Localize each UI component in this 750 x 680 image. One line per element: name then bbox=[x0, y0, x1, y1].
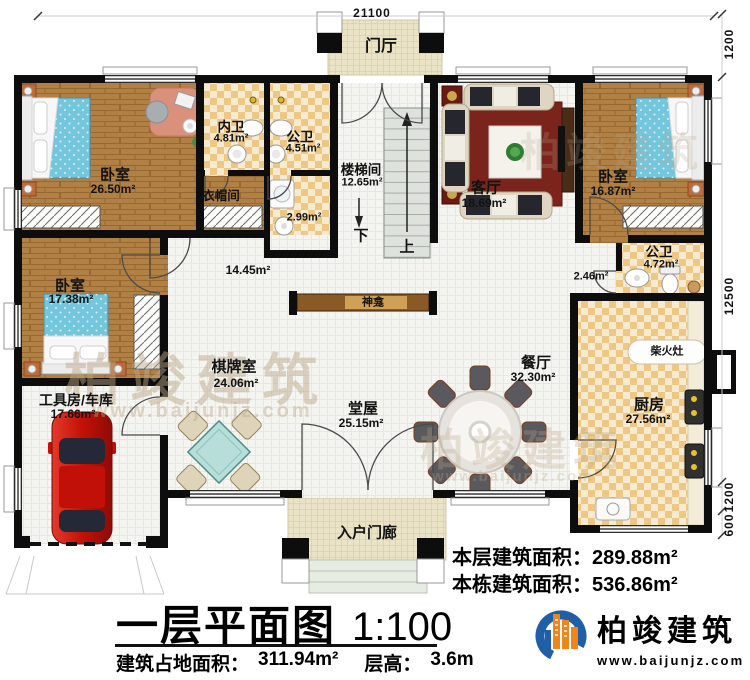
label-stair-down: 下 bbox=[353, 229, 368, 244]
stove bbox=[685, 390, 704, 424]
label-garage-area: 17.66m² bbox=[51, 408, 96, 420]
label-game-room-area: 24.06m² bbox=[214, 377, 259, 389]
label-stairwell-area: 12.65m² bbox=[342, 178, 383, 189]
dim-right-2: 12500 bbox=[723, 277, 735, 315]
wardrobe-bedroom3 bbox=[134, 295, 160, 369]
desk-chair bbox=[146, 101, 168, 123]
label-dining-area: 32.30m² bbox=[511, 371, 556, 383]
floor-height-label: 层高： bbox=[364, 649, 421, 676]
pillow bbox=[80, 346, 106, 359]
dining-table bbox=[414, 366, 546, 498]
toilet bbox=[662, 274, 678, 294]
label-bedroom1-area: 26.50m² bbox=[91, 183, 136, 195]
title-underline bbox=[115, 644, 437, 647]
dim-right-3: 1200 bbox=[723, 482, 735, 513]
footprint-label: 建筑占地面积： bbox=[116, 649, 249, 676]
car bbox=[48, 412, 116, 544]
footprint-value: 311.94m² bbox=[258, 649, 338, 676]
label-bedroom1: 卧室 bbox=[100, 168, 130, 183]
label-main-hall: 堂屋 bbox=[348, 402, 378, 417]
pillow bbox=[676, 140, 688, 172]
label-kitchen: 厨房 bbox=[634, 398, 664, 413]
floor-plan-page: 柏竣建筑 www.baijunjz.com 柏竣建筑 www.baijunjz.… bbox=[0, 0, 750, 680]
label-public-bath-mid-area: 4.72m² bbox=[644, 260, 679, 271]
label-stair-up: 上 bbox=[399, 240, 414, 255]
label-foyer: 门厅 bbox=[365, 39, 397, 55]
pillow bbox=[34, 102, 47, 134]
building-area-line: 本栋建筑面积：536.86m² bbox=[452, 572, 678, 599]
label-entry-porch: 入户门廊 bbox=[337, 526, 397, 541]
label-shrine: 神龛 bbox=[362, 298, 384, 309]
label-stairwell: 楼梯间 bbox=[341, 163, 382, 177]
brand-website: www.baijunjz.com bbox=[597, 653, 744, 668]
label-utility-area: 2.99m² bbox=[287, 213, 322, 224]
label-garage: 工具房/车库 bbox=[39, 393, 113, 407]
label-cloakroom: 衣帽间 bbox=[202, 190, 240, 203]
label-public-bath-top-area: 4.51m² bbox=[286, 144, 321, 155]
wardrobe-bedroom1 bbox=[20, 206, 100, 228]
pillow bbox=[676, 102, 688, 134]
headboard bbox=[692, 96, 704, 180]
brand-name: 柏竣建筑 bbox=[597, 606, 744, 650]
label-public-bath-mid: 公卫 bbox=[646, 245, 673, 259]
wardrobe-bedroom2 bbox=[623, 206, 703, 228]
stove bbox=[685, 444, 704, 478]
dining-chair bbox=[470, 366, 490, 390]
dining-chair bbox=[522, 422, 546, 442]
label-living-area: 18.69m² bbox=[462, 197, 507, 209]
label-wood-stove: 柴火灶 bbox=[651, 347, 684, 358]
dim-total-width: 21100 bbox=[353, 7, 391, 19]
pillow bbox=[50, 346, 76, 359]
pillow bbox=[34, 140, 47, 172]
kitchen-sink bbox=[596, 498, 630, 520]
area-stats: 本层建筑面积：289.88m² 本栋建筑面积：536.86m² bbox=[452, 545, 678, 599]
dim-right-1: 1200 bbox=[723, 29, 735, 60]
flue-inner bbox=[717, 355, 731, 389]
driveway bbox=[6, 556, 164, 594]
label-corridor-area: 2.46m² bbox=[574, 272, 609, 283]
floor-height-value: 3.6m bbox=[430, 649, 473, 676]
label-kitchen-area: 27.56m² bbox=[626, 413, 671, 425]
brand-block: 柏竣建筑 www.baijunjz.com bbox=[533, 606, 744, 668]
mop-basin bbox=[688, 281, 700, 293]
label-game-room: 棋牌室 bbox=[211, 360, 256, 375]
label-living: 客厅 bbox=[471, 181, 501, 196]
label-bedroom2: 卧室 bbox=[598, 170, 628, 185]
label-bedroom3-area: 17.38m² bbox=[49, 293, 94, 305]
floor-area-line: 本层建筑面积：289.88m² bbox=[452, 545, 678, 572]
label-bedroom2-area: 16.87m² bbox=[591, 185, 636, 197]
tv bbox=[558, 126, 565, 172]
label-inner-bath-area: 4.81m² bbox=[214, 134, 249, 145]
brand-logo-icon bbox=[533, 606, 589, 662]
label-main-hall-area: 25.15m² bbox=[339, 417, 384, 429]
wardrobe-cloakroom bbox=[200, 206, 262, 228]
dim-right-4: 600 bbox=[723, 513, 735, 536]
room-floors bbox=[14, 20, 704, 560]
label-dining: 餐厅 bbox=[521, 356, 551, 371]
label-center-hall-area: 14.45m² bbox=[226, 264, 271, 276]
plan-subtitle-row: 建筑占地面积： 311.94m² 层高： 3.6m bbox=[116, 649, 474, 676]
